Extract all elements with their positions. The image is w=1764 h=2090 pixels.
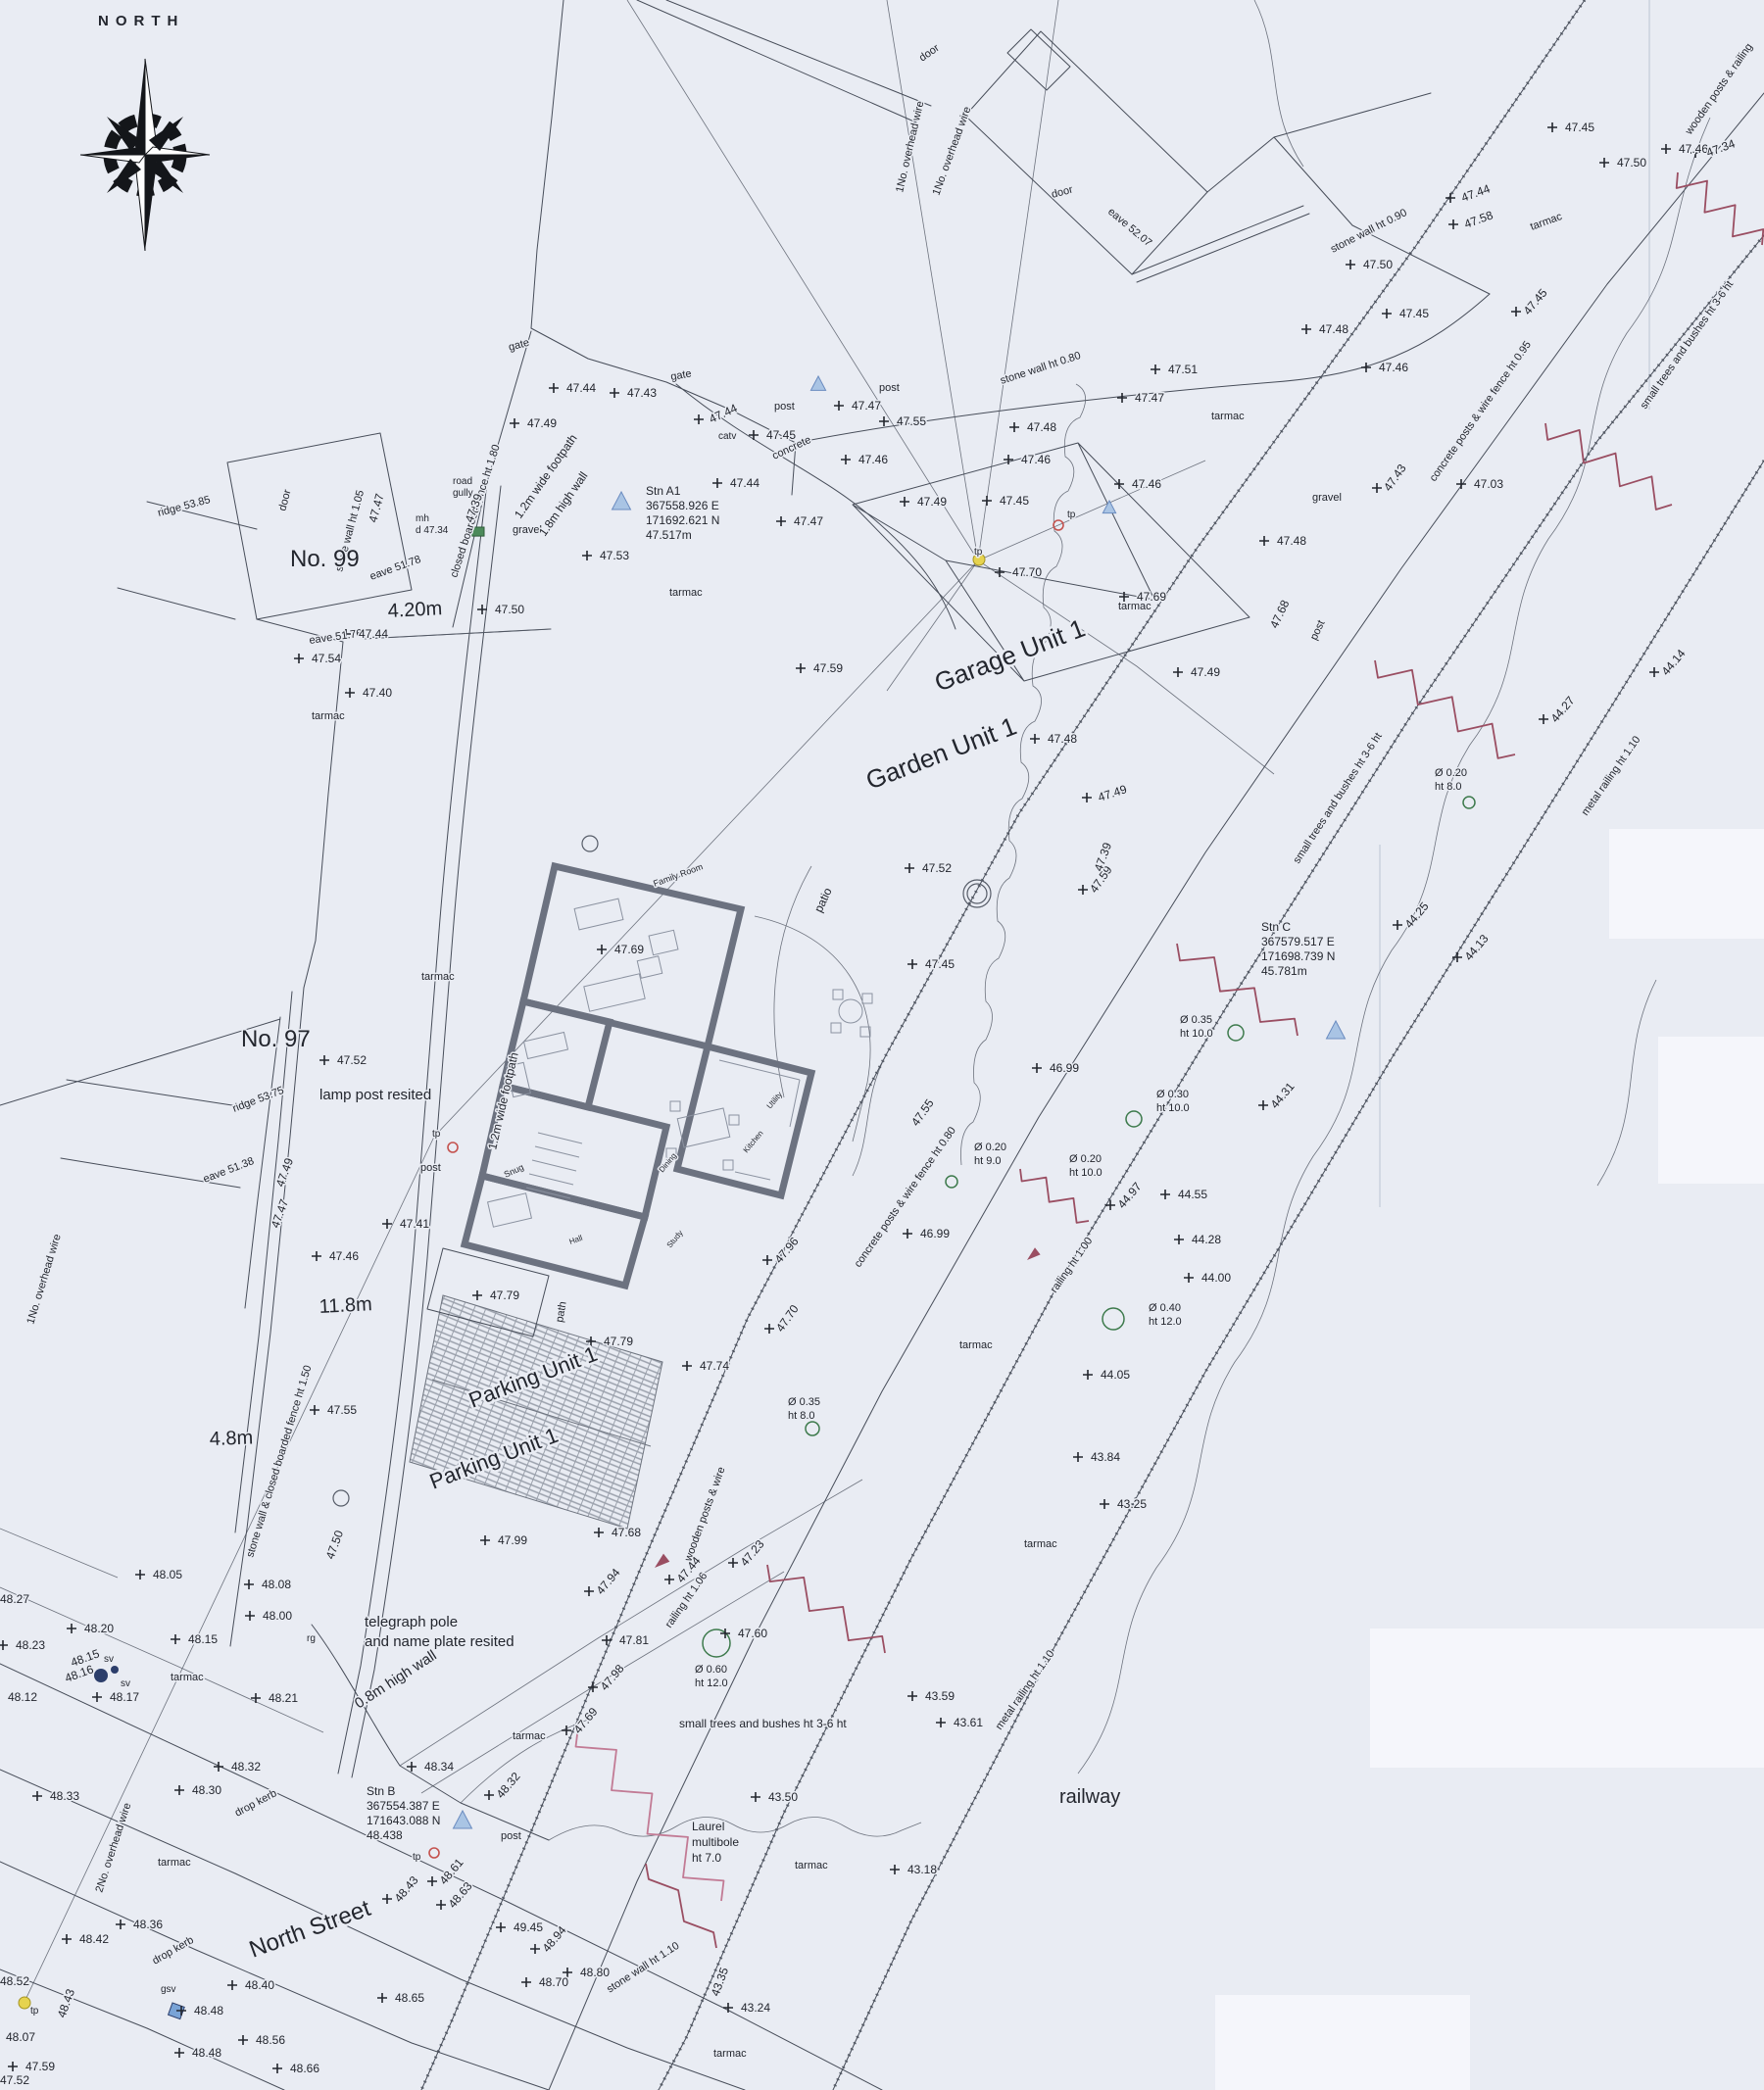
- map-label-47-47: 47.47: [794, 514, 823, 528]
- map-label-44-28: 44.28: [1192, 1233, 1221, 1246]
- map-label-47-48: 47.48: [1027, 420, 1056, 434]
- map-label-43-61: 43.61: [954, 1716, 983, 1729]
- map-label-0-20: Ø 0.20: [1435, 767, 1467, 779]
- map-label-47-45: 47.45: [1000, 494, 1029, 508]
- map-label-47-59: 47.59: [813, 661, 843, 675]
- map-label-43-24: 43.24: [741, 2001, 770, 2015]
- map-label-stn-b: Stn B: [367, 1784, 395, 1798]
- map-label-no-97: No. 97: [241, 1026, 311, 1052]
- map-label-49-45: 49.45: [514, 1920, 543, 1934]
- map-label-47-48: 47.48: [1277, 534, 1306, 548]
- map-label-47-49: 47.49: [917, 495, 947, 509]
- map-label-0-60: Ø 0.60: [695, 1664, 727, 1676]
- map-label-171692-621-n: 171692.621 N: [646, 513, 719, 527]
- map-label-0-30: Ø 0.30: [1156, 1089, 1189, 1100]
- scan-artifacts-shape: [1609, 829, 1764, 939]
- map-label-tarmac: tarmac: [1211, 411, 1245, 422]
- scan-artifacts-shape: [1658, 1037, 1764, 1184]
- map-label-48-08: 48.08: [262, 1578, 291, 1591]
- map-label-47-46: 47.46: [1679, 142, 1708, 156]
- map-label-45-781m: 45.781m: [1261, 964, 1307, 978]
- map-label-48-42: 48.42: [79, 1932, 109, 1946]
- map-label-46-99: 46.99: [920, 1227, 950, 1240]
- map-label-47-99: 47.99: [498, 1533, 527, 1547]
- map-label-lamp-post-resited: lamp post resited: [319, 1087, 431, 1103]
- map-label-ht-7-0: ht 7.0: [692, 1851, 721, 1865]
- map-label-tarmac: tarmac: [959, 1339, 993, 1351]
- map-label-0-40: Ø 0.40: [1149, 1302, 1181, 1314]
- map-label-0-35: Ø 0.35: [788, 1396, 820, 1408]
- map-label-0-20: Ø 0.20: [974, 1142, 1006, 1153]
- valve-cluster-icon: [94, 1669, 108, 1682]
- map-label-47-40: 47.40: [363, 686, 392, 700]
- map-label-multibole: multibole: [692, 1835, 739, 1849]
- map-label-48-48: 48.48: [194, 2004, 223, 2017]
- map-label-47-44: 47.44: [566, 381, 596, 395]
- map-label-48-66: 48.66: [290, 2062, 319, 2075]
- map-label-47-59: 47.59: [25, 2060, 55, 2073]
- map-label-tarmac: tarmac: [1118, 601, 1151, 612]
- map-label-11-8m: 11.8m: [318, 1293, 372, 1318]
- map-label-ht-10-0: ht 10.0: [1069, 1167, 1102, 1179]
- map-label-tp: tp: [432, 1129, 441, 1140]
- map-label-ht-10-0: ht 10.0: [1156, 1102, 1190, 1114]
- map-label-48-15: 48.15: [188, 1632, 218, 1646]
- map-label-48-20: 48.20: [84, 1622, 114, 1635]
- map-label-47-52: 47.52: [0, 2073, 29, 2087]
- map-label-47-69: 47.69: [614, 943, 644, 956]
- map-label-48-23: 48.23: [16, 1638, 45, 1652]
- map-label-43-50: 43.50: [768, 1790, 798, 1804]
- map-label-47-52: 47.52: [337, 1053, 367, 1067]
- map-label-367558-926-e: 367558.926 E: [646, 499, 719, 512]
- site-plan-drawing: NORTHdoordoor1No. overhead wire1No. over…: [0, 0, 1764, 2090]
- map-label-48-34: 48.34: [424, 1760, 454, 1774]
- map-label-47-70: 47.70: [1012, 565, 1042, 579]
- map-label-48-32: 48.32: [231, 1760, 261, 1774]
- map-label-48-80: 48.80: [580, 1966, 610, 1979]
- map-label-44-55: 44.55: [1178, 1188, 1207, 1201]
- map-label-47-54: 47.54: [312, 652, 341, 665]
- map-label-47-44: 47.44: [359, 627, 388, 641]
- map-label-47-79: 47.79: [490, 1288, 519, 1302]
- map-label-stn-a1: Stn A1: [646, 484, 681, 498]
- map-label-47-68: 47.68: [612, 1526, 641, 1539]
- map-label-sv: sv: [121, 1678, 130, 1689]
- scan-artifacts-shape: [1215, 1995, 1470, 2090]
- map-label-and-name-plate-resited: and name plate resited: [365, 1633, 514, 1650]
- map-label-47-49: 47.49: [1191, 665, 1220, 679]
- map-label-47-55: 47.55: [327, 1403, 357, 1417]
- scan-artifacts-shape: [1370, 1628, 1764, 1768]
- map-label-47-46: 47.46: [1021, 453, 1051, 466]
- map-label-ht-10-0: ht 10.0: [1180, 1028, 1213, 1040]
- map-label-48-438: 48.438: [367, 1828, 403, 1842]
- map-label-47-41: 47.41: [400, 1217, 429, 1231]
- map-label-48-33: 48.33: [50, 1789, 79, 1803]
- map-label-tarmac: tarmac: [795, 1860, 828, 1871]
- map-label-47-55: 47.55: [897, 414, 926, 428]
- map-label-ht-12-0: ht 12.0: [695, 1677, 728, 1689]
- map-label-367554-387-e: 367554.387 E: [367, 1799, 440, 1813]
- map-label-47-47: 47.47: [852, 399, 881, 413]
- map-label-gravel: gravel: [1312, 492, 1342, 504]
- map-label-post: post: [501, 1830, 521, 1842]
- map-label-47-49: 47.49: [527, 416, 557, 430]
- map-label-47-51: 47.51: [1168, 363, 1198, 376]
- map-label-no-99: No. 99: [290, 546, 360, 572]
- map-label-47-43: 47.43: [627, 386, 657, 400]
- map-label-47-45: 47.45: [925, 957, 955, 971]
- map-label-tarmac: tarmac: [1024, 1538, 1057, 1550]
- map-label-47-60: 47.60: [738, 1627, 767, 1640]
- map-label-catv: catv: [718, 431, 736, 442]
- map-label-tarmac: tarmac: [513, 1730, 546, 1742]
- map-label-47-81: 47.81: [619, 1633, 649, 1647]
- map-label-post: post: [879, 382, 900, 394]
- map-label-48-27: 48.27: [0, 1592, 29, 1606]
- map-label-4-8m: 4.8m: [209, 1427, 253, 1450]
- map-label-48-52: 48.52: [0, 1974, 29, 1988]
- map-label-48-00: 48.00: [263, 1609, 292, 1623]
- map-label-ht-8-0: ht 8.0: [1435, 781, 1462, 793]
- map-label-post: post: [420, 1162, 441, 1174]
- map-label-47-517m: 47.517m: [646, 528, 692, 542]
- map-label-48-17: 48.17: [110, 1690, 139, 1704]
- map-label-48-48: 48.48: [192, 2046, 221, 2060]
- map-label-47-48: 47.48: [1319, 322, 1348, 336]
- map-label-north: NORTH: [98, 13, 184, 29]
- map-label-47-45: 47.45: [766, 428, 796, 442]
- map-label-telegraph-pole: telegraph pole: [365, 1614, 458, 1630]
- map-label-48-40: 48.40: [245, 1978, 274, 1992]
- map-label-4-20m: 4.20m: [387, 598, 443, 622]
- map-label-tarmac: tarmac: [713, 2048, 747, 2060]
- survey-sheet: NORTHdoordoor1No. overhead wire1No. over…: [0, 0, 1764, 2090]
- map-label-44-00: 44.00: [1201, 1271, 1231, 1285]
- map-label-47-79: 47.79: [604, 1335, 633, 1348]
- map-label-47-46: 47.46: [329, 1249, 359, 1263]
- map-label-47-50: 47.50: [1617, 156, 1646, 170]
- map-label-171698-739-n: 171698.739 N: [1261, 949, 1335, 963]
- map-label-ht-9-0: ht 9.0: [974, 1155, 1002, 1167]
- map-label-47-46: 47.46: [1132, 477, 1161, 491]
- map-label-43-25: 43.25: [1117, 1497, 1147, 1511]
- map-label-stn-c: Stn C: [1261, 920, 1291, 934]
- map-label-railway: railway: [1059, 1786, 1120, 1808]
- map-label-47-50: 47.50: [495, 603, 524, 616]
- map-label-48-30: 48.30: [192, 1783, 221, 1797]
- map-label-47-47: 47.47: [1135, 391, 1164, 405]
- map-label-47-53: 47.53: [600, 549, 629, 562]
- map-label-small-trees-and-bushes-ht-3-6-ht: small trees and bushes ht 3-6 ht: [679, 1717, 847, 1730]
- map-label-tp: tp: [413, 1852, 421, 1863]
- map-label-47-03: 47.03: [1474, 477, 1503, 491]
- map-label-laurel: Laurel: [692, 1820, 724, 1833]
- map-label-tarmac: tarmac: [312, 710, 345, 722]
- map-label-tarmac: tarmac: [158, 1857, 191, 1869]
- map-label-48-05: 48.05: [153, 1568, 182, 1581]
- map-label-47-52: 47.52: [922, 861, 952, 875]
- map-label-mh: mh: [416, 513, 429, 524]
- map-label-48-70: 48.70: [539, 1975, 568, 1989]
- map-label-sv: sv: [104, 1654, 114, 1665]
- map-label-43-59: 43.59: [925, 1689, 955, 1703]
- map-label-43-18: 43.18: [907, 1863, 937, 1876]
- map-label-171643-088-n: 171643.088 N: [367, 1814, 440, 1827]
- map-label-tp: tp: [974, 547, 983, 558]
- map-label-48-21: 48.21: [269, 1691, 298, 1705]
- map-label-367579-517-e: 367579.517 E: [1261, 935, 1335, 948]
- map-label-0-20: Ø 0.20: [1069, 1153, 1102, 1165]
- map-label-46-99: 46.99: [1050, 1061, 1079, 1075]
- map-label-tp: tp: [1067, 510, 1076, 520]
- map-label-d-47-34: d 47.34: [416, 525, 449, 536]
- map-label-47-44: 47.44: [730, 476, 759, 490]
- map-label-47-50: 47.50: [1363, 258, 1393, 271]
- map-label-ht-8-0: ht 8.0: [788, 1410, 815, 1422]
- map-label-gsv: gsv: [161, 1984, 176, 1995]
- map-label-47-45: 47.45: [1399, 307, 1429, 320]
- map-label-47-74: 47.74: [700, 1359, 729, 1373]
- map-label-47-46: 47.46: [858, 453, 888, 466]
- map-label-tarmac: tarmac: [171, 1672, 204, 1683]
- map-label-47-45: 47.45: [1565, 121, 1594, 134]
- map-label-tarmac: tarmac: [421, 971, 455, 983]
- map-label-0-35: Ø 0.35: [1180, 1014, 1212, 1026]
- map-label-48-07: 48.07: [6, 2030, 35, 2044]
- map-label-48-12: 48.12: [8, 1690, 37, 1704]
- map-label-48-65: 48.65: [395, 1991, 424, 2005]
- map-label-tp: tp: [30, 2006, 39, 2017]
- telegraph-pole-icon: [19, 1997, 30, 2009]
- map-label-43-84: 43.84: [1091, 1450, 1120, 1464]
- map-label-tarmac: tarmac: [669, 587, 703, 599]
- valve-cluster-icon: [111, 1666, 119, 1674]
- map-label-47-48: 47.48: [1048, 732, 1077, 746]
- map-label-44-05: 44.05: [1101, 1368, 1130, 1382]
- map-label-48-56: 48.56: [256, 2033, 285, 2047]
- map-label-47-46: 47.46: [1379, 361, 1408, 374]
- map-label-post: post: [774, 401, 795, 413]
- map-label-road: road: [453, 476, 472, 487]
- map-label-rg: rg: [307, 1633, 316, 1644]
- map-label-48-36: 48.36: [133, 1918, 163, 1931]
- map-label-ht-12-0: ht 12.0: [1149, 1316, 1182, 1328]
